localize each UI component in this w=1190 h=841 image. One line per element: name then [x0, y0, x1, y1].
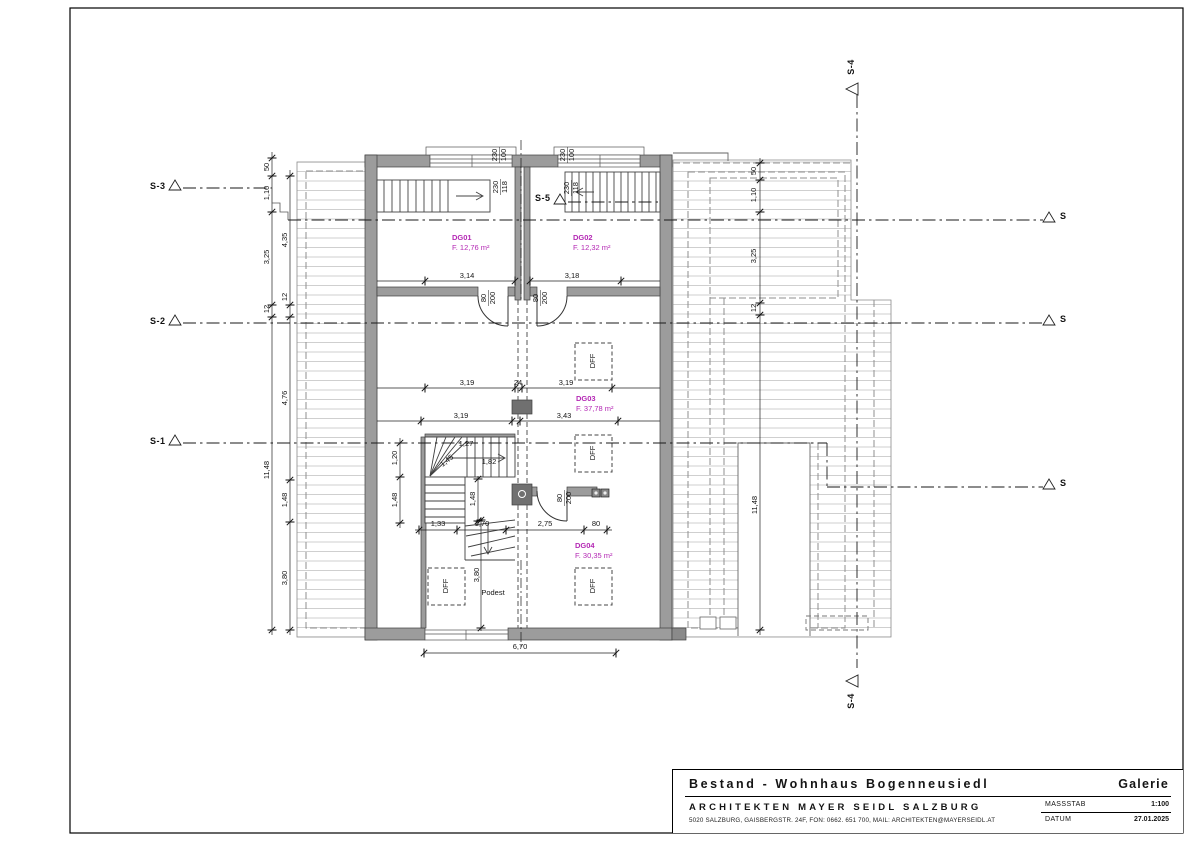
room-label-dg02: DG02 F. 12,32 m² — [573, 233, 611, 253]
dimension-label: 1,10 — [750, 188, 758, 203]
dimension-label: 100 — [568, 149, 576, 162]
dimension-label: 200 — [541, 292, 549, 305]
dimension-label: 80 — [556, 494, 564, 502]
dimension-label: 24 — [514, 379, 522, 387]
dimension-label: 80 — [592, 520, 600, 528]
dimension-label: 1,33 — [431, 520, 446, 528]
dimension-label: 80 — [480, 294, 488, 302]
room-id: DG02 — [573, 233, 611, 243]
dimension-label: 12 — [281, 293, 289, 301]
title-block: Bestand - Wohnhaus Bogenneusiedl Galerie… — [672, 769, 1183, 833]
dimension-label: 230 — [491, 149, 499, 162]
dimension-label: 3,25 — [750, 249, 758, 264]
dimension-label: 6,70 — [513, 643, 528, 651]
dimension-label: 1,45 — [439, 453, 455, 468]
dimension-label: 50 — [263, 163, 271, 171]
dimension-label: 3,43 — [557, 412, 572, 420]
dimension-label: 118 — [572, 182, 580, 194]
room-label-dg01: DG01 F. 12,76 m² — [452, 233, 490, 253]
dimension-label: 1,70 — [475, 520, 490, 528]
dimension-label: 50 — [750, 167, 758, 175]
dimension-label: 4,35 — [281, 233, 289, 248]
dimension-label: DFF — [589, 579, 597, 594]
section-label-s1: S-1 — [150, 436, 166, 446]
section-label-s4-bottom: S-4 — [846, 693, 856, 709]
sheet-name: Galerie — [1118, 777, 1169, 791]
dimension-label: 230 — [559, 149, 567, 162]
dimension-label: 1,48 — [391, 493, 399, 508]
dimension-label: 3,25 — [263, 250, 271, 265]
scale-date-divider — [1041, 812, 1171, 813]
section-label-s-right-3: S — [1060, 478, 1067, 488]
room-area: F. 12,32 m² — [573, 243, 611, 253]
dimension-label: DFF — [442, 579, 450, 594]
dimension-label: 11,48 — [751, 496, 759, 514]
dimension-label: 80 — [532, 294, 540, 302]
room-area: F. 37,78 m² — [576, 404, 614, 414]
dimension-label: DFF — [589, 354, 597, 369]
dimension-label: 1,27 — [459, 440, 474, 448]
firm-name: ARCHITEKTEN MAYER SEIDL SALZBURG — [689, 802, 981, 813]
dimension-label: 3,80 — [473, 568, 481, 583]
section-label-s3: S-3 — [150, 181, 166, 191]
dimension-label: 230 — [563, 182, 571, 195]
dimension-label: 2,75 — [538, 520, 553, 528]
dimension-label: 3,14 — [460, 272, 475, 280]
dimension-label: 3,80 — [281, 571, 289, 586]
dimension-label: Podest — [481, 589, 504, 597]
scale-value: 1:100 — [1151, 801, 1169, 808]
firm-address: 5020 SALZBURG, GAISBERGSTR. 24F, FON: 06… — [689, 817, 995, 824]
section-label-s4-top: S-4 — [846, 59, 856, 75]
drawing-sheet: 23010023011823010023011880200802003,143,… — [0, 0, 1190, 841]
dimension-label: 11,48 — [263, 461, 271, 479]
room-id: DG01 — [452, 233, 490, 243]
dimension-label: 3,19 — [559, 379, 574, 387]
dimension-label: 1,48 — [281, 493, 289, 508]
dimension-label: 3,18 — [565, 272, 580, 280]
section-label-s-right-2: S — [1060, 314, 1067, 324]
room-label-dg03: DG03 F. 37,78 m² — [576, 394, 614, 414]
room-area: F. 30,35 m² — [575, 551, 613, 561]
section-label-s-right-1: S — [1060, 211, 1067, 221]
dimension-label: 3,19 — [460, 379, 475, 387]
date-label: DATUM — [1045, 816, 1071, 823]
dimension-label: 200 — [565, 492, 573, 505]
scale-label: MASSSTAB — [1045, 801, 1086, 808]
project-title: Bestand - Wohnhaus Bogenneusiedl — [689, 777, 989, 791]
dimension-label: DFF — [589, 446, 597, 461]
section-label-s5: S-5 — [535, 193, 551, 203]
dimension-label: 1,48 — [469, 492, 477, 507]
dimension-label: 12 — [263, 305, 271, 313]
dimension-label: 230 — [492, 181, 500, 194]
room-area: F. 12,76 m² — [452, 243, 490, 253]
dimension-label: 1,20 — [391, 451, 399, 466]
room-id: DG03 — [576, 394, 614, 404]
dimension-label: 100 — [500, 149, 508, 162]
dimension-label: 4,76 — [281, 391, 289, 406]
title-divider — [685, 796, 1171, 797]
room-id: DG04 — [575, 541, 613, 551]
dimension-label: 118 — [501, 181, 509, 193]
dimension-label: 1,82 — [482, 458, 497, 466]
dimension-label: 12 — [750, 304, 758, 312]
annotation-layer: 23010023011823010023011880200802003,143,… — [0, 0, 1190, 841]
dimension-label: 1,10 — [263, 186, 271, 201]
section-label-s2: S-2 — [150, 316, 166, 326]
dimension-label: 3,19 — [454, 412, 469, 420]
room-label-dg04: DG04 F. 30,35 m² — [575, 541, 613, 561]
date-value: 27.01.2025 — [1134, 816, 1169, 823]
dimension-label: 200 — [489, 292, 497, 305]
